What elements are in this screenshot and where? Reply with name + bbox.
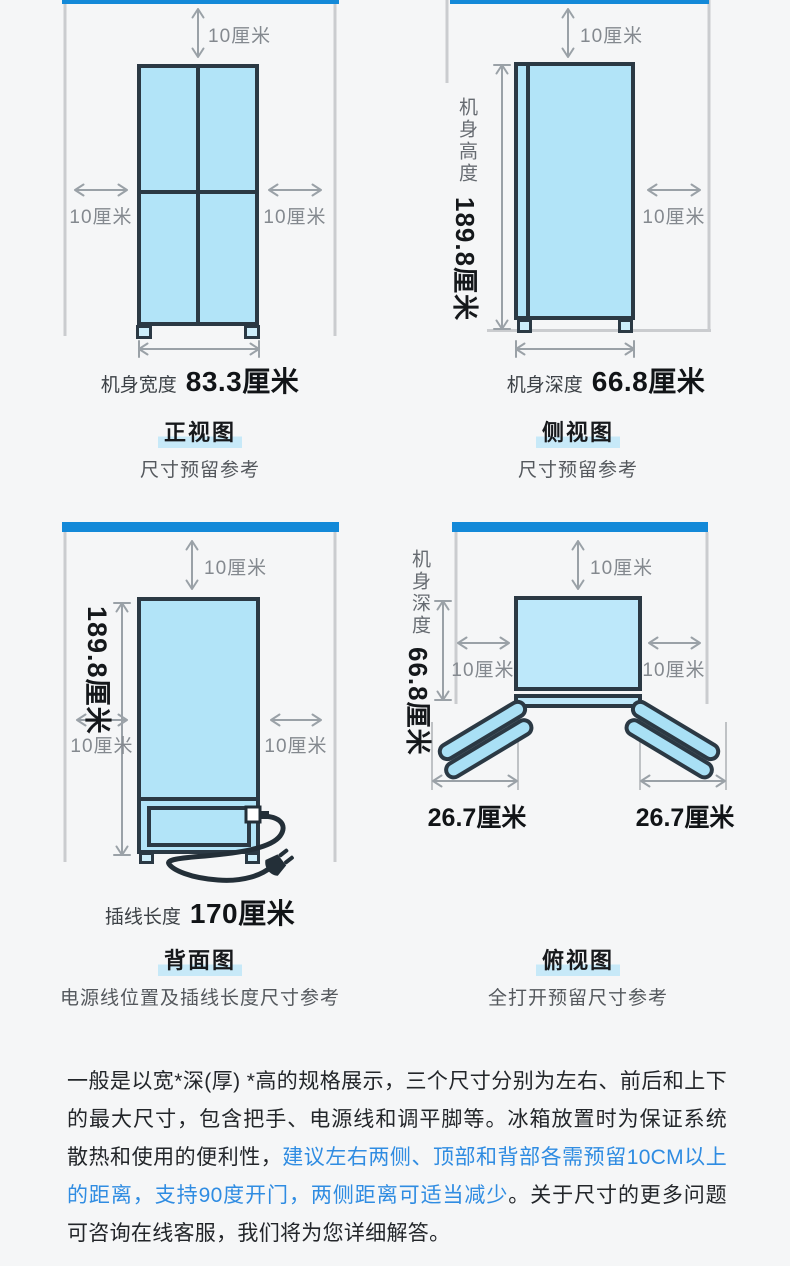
side-depth-value: 66.8厘米 <box>592 360 706 400</box>
back-view-subtitle: 电源线位置及插线长度尺寸参考 <box>40 983 360 1010</box>
fridge-size-guide: 10厘米 10厘米 10厘米 机身宽度 83.3厘米 正视图 尺寸预留参考 10… <box>0 0 790 1266</box>
door-swing-left-value: 26.7厘米 <box>407 798 547 834</box>
side-height-value: 189.8厘米 <box>448 197 485 321</box>
side-depth-dimension: 机身深度 66.8厘米 <box>446 360 766 400</box>
topview-title: 俯视图 <box>536 946 620 976</box>
front-width-value: 83.3厘米 <box>186 360 300 400</box>
back-clearance-left-label: 10厘米 <box>67 731 137 758</box>
back-cord-label: 插线长度 <box>105 902 181 929</box>
topview-depth-label: 机身深度 <box>406 549 433 637</box>
side-height-label: 机身高度 <box>453 97 480 185</box>
side-view-title: 侧视图 <box>536 418 620 448</box>
power-cord <box>169 816 284 880</box>
power-plug <box>262 845 297 878</box>
topview-clearance-left-label: 10厘米 <box>448 655 518 682</box>
front-clearance-left-label: 10厘米 <box>66 202 136 229</box>
open-door-right <box>620 699 724 780</box>
front-clearance-right-label: 10厘米 <box>260 202 330 229</box>
side-view-title-block: 侧视图 <box>418 418 738 448</box>
back-view-title: 背面图 <box>158 946 242 976</box>
topview-depth-value: 66.8厘米 <box>401 647 438 756</box>
front-view-subtitle: 尺寸预留参考 <box>40 455 360 482</box>
back-clearance-top-label: 10厘米 <box>204 553 267 580</box>
topview-depth-dimension: 机身深度 66.8厘米 <box>401 549 438 756</box>
topview-subtitle: 全打开预留尺寸参考 <box>418 983 738 1010</box>
topview-title-block: 俯视图 <box>418 946 738 976</box>
side-height-dimension: 机身高度 189.8厘米 <box>448 97 485 321</box>
topview-clearance-top-label: 10厘米 <box>590 553 653 580</box>
back-cord-value: 170厘米 <box>190 892 295 932</box>
back-clearance-right-label: 10厘米 <box>261 731 331 758</box>
back-height-value: 189.8厘米 <box>80 606 119 735</box>
back-view-title-block: 背面图 <box>40 946 360 976</box>
side-clearance-right-label: 10厘米 <box>639 202 709 229</box>
back-height-dimension: 189.8厘米 <box>80 606 119 735</box>
size-note-paragraph: 一般是以宽*深(厚) *高的规格展示，三个尺寸分别为左右、前后和上下的最大尺寸，… <box>67 1063 727 1253</box>
front-clearance-top-label: 10厘米 <box>208 21 271 48</box>
side-view-subtitle: 尺寸预留参考 <box>418 455 738 482</box>
door-swing-right-value: 26.7厘米 <box>615 798 755 834</box>
front-view-title-block: 正视图 <box>40 418 360 448</box>
open-door-left <box>434 699 538 780</box>
side-depth-label: 机身深度 <box>507 370 583 397</box>
power-cord-connector <box>246 807 269 822</box>
front-width-dimension: 机身宽度 83.3厘米 <box>40 360 360 400</box>
topview-clearance-right-label: 10厘米 <box>639 655 709 682</box>
back-cord-dimension: 插线长度 170厘米 <box>40 892 360 932</box>
side-clearance-top-label: 10厘米 <box>580 21 643 48</box>
front-view-title: 正视图 <box>158 418 242 448</box>
front-width-label: 机身宽度 <box>101 370 177 397</box>
